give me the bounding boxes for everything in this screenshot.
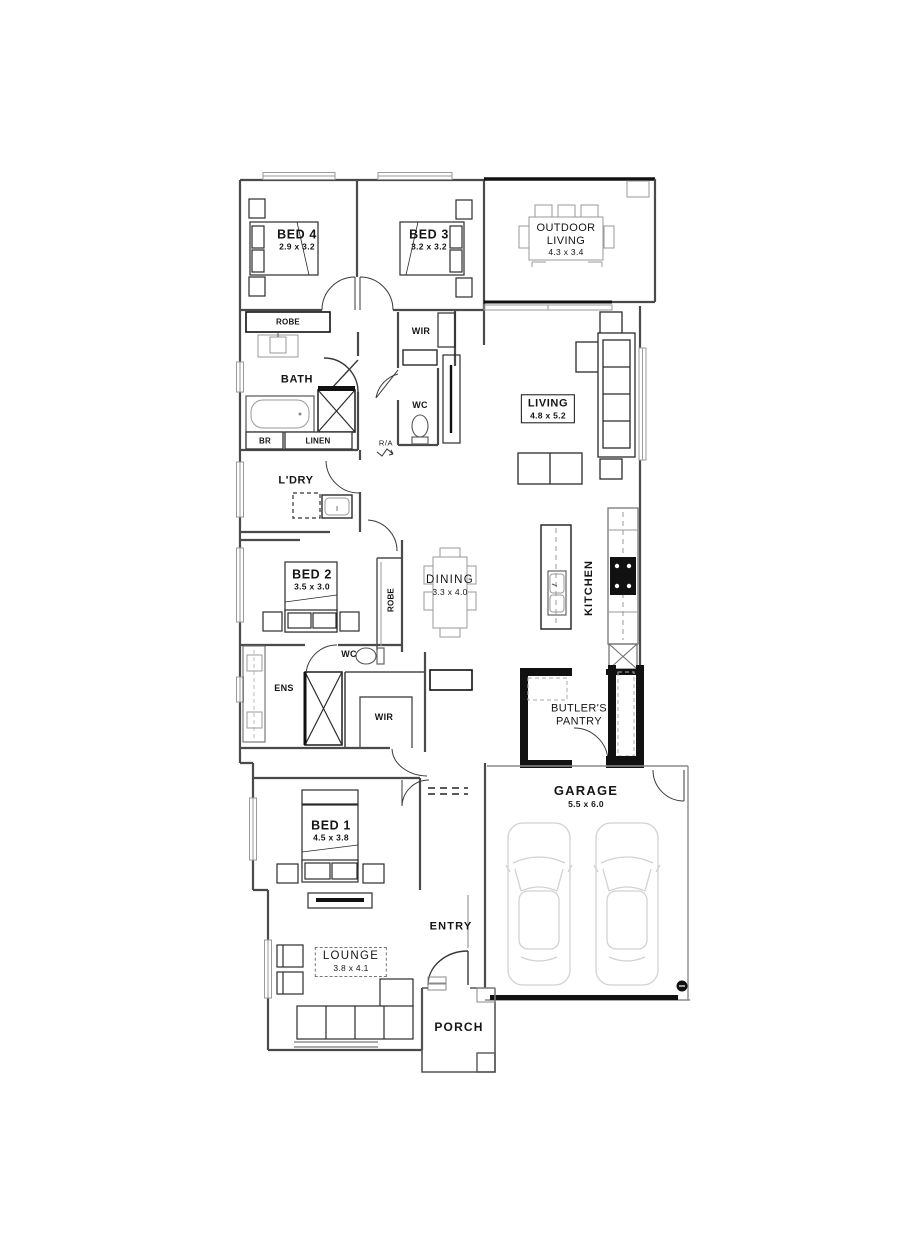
outdoor-living-label: OUTDOOR LIVING 4.3 x 3.4 bbox=[528, 222, 604, 258]
bed1-furniture bbox=[277, 790, 384, 908]
bed4-name: BED 4 bbox=[277, 227, 317, 241]
butlers-pantry-label: BUTLER'S PANTRY bbox=[541, 702, 617, 727]
garage-name: GARAGE bbox=[554, 784, 618, 799]
butlers-pantry-name: BUTLER'S PANTRY bbox=[541, 702, 617, 727]
outdoor-living-name: OUTDOOR LIVING bbox=[528, 222, 604, 247]
floor-plan: BED 4 2.9 x 3.2 BED 3 3.2 x 3.2 OUTDOOR … bbox=[0, 0, 901, 1245]
ens-label: ENS bbox=[274, 683, 293, 693]
wir-master-label: WIR bbox=[375, 712, 393, 722]
wc-hall-label: WC bbox=[412, 400, 428, 410]
bath-label: BATH bbox=[281, 374, 313, 387]
bed2-name: BED 2 bbox=[292, 567, 332, 581]
br-label: BR bbox=[259, 436, 271, 445]
bed1-label: BED 1 4.5 x 3.8 bbox=[311, 818, 351, 843]
bed4-label: BED 4 2.9 x 3.2 bbox=[277, 227, 317, 252]
robe-bed4-label: ROBE bbox=[276, 317, 300, 326]
ra-label: R/A bbox=[379, 440, 393, 449]
bed2-dims: 3.5 x 3.0 bbox=[292, 583, 332, 593]
garage-label: GARAGE 5.5 x 6.0 bbox=[554, 784, 618, 810]
robe-bed2-label: ROBE bbox=[387, 588, 396, 612]
lounge-name: LOUNGE bbox=[323, 950, 379, 963]
wc-ens-label: WC bbox=[341, 649, 357, 659]
dining-name: DINING bbox=[426, 574, 474, 587]
porch-label: PORCH bbox=[434, 1021, 483, 1035]
bed2-label: BED 2 3.5 x 3.0 bbox=[292, 567, 332, 592]
bed2-furniture bbox=[263, 558, 402, 650]
lounge-dims: 3.8 x 4.1 bbox=[323, 964, 379, 974]
dining-dims: 3.3 x 4.0 bbox=[426, 588, 474, 598]
living-name: LIVING bbox=[528, 397, 568, 410]
living-dims: 4.8 x 5.2 bbox=[528, 411, 568, 421]
ldry-label: L'DRY bbox=[278, 475, 313, 488]
bed1-dims: 4.5 x 3.8 bbox=[311, 834, 351, 844]
linen-label: LINEN bbox=[306, 436, 331, 445]
bed3-name: BED 3 bbox=[409, 227, 449, 241]
lounge-label: LOUNGE 3.8 x 4.1 bbox=[315, 947, 387, 977]
entry-label: ENTRY bbox=[430, 921, 473, 934]
bed1-name: BED 1 bbox=[311, 818, 351, 832]
dining-label: DINING 3.3 x 4.0 bbox=[426, 574, 474, 598]
floor-plan-drawing bbox=[0, 0, 901, 1245]
bed4-dims: 2.9 x 3.2 bbox=[277, 243, 317, 253]
wir-hall-label: WIR bbox=[412, 326, 430, 336]
garage-dims: 5.5 x 6.0 bbox=[554, 800, 618, 810]
outdoor-living-dims: 4.3 x 3.4 bbox=[528, 248, 604, 258]
bed3-label: BED 3 3.2 x 3.2 bbox=[409, 227, 449, 252]
bed3-dims: 3.2 x 3.2 bbox=[409, 243, 449, 253]
laundry-fixtures bbox=[293, 493, 352, 518]
ensuite-fixtures bbox=[243, 646, 472, 748]
living-label: LIVING 4.8 x 5.2 bbox=[521, 394, 575, 423]
kitchen-label: KITCHEN bbox=[583, 560, 595, 616]
